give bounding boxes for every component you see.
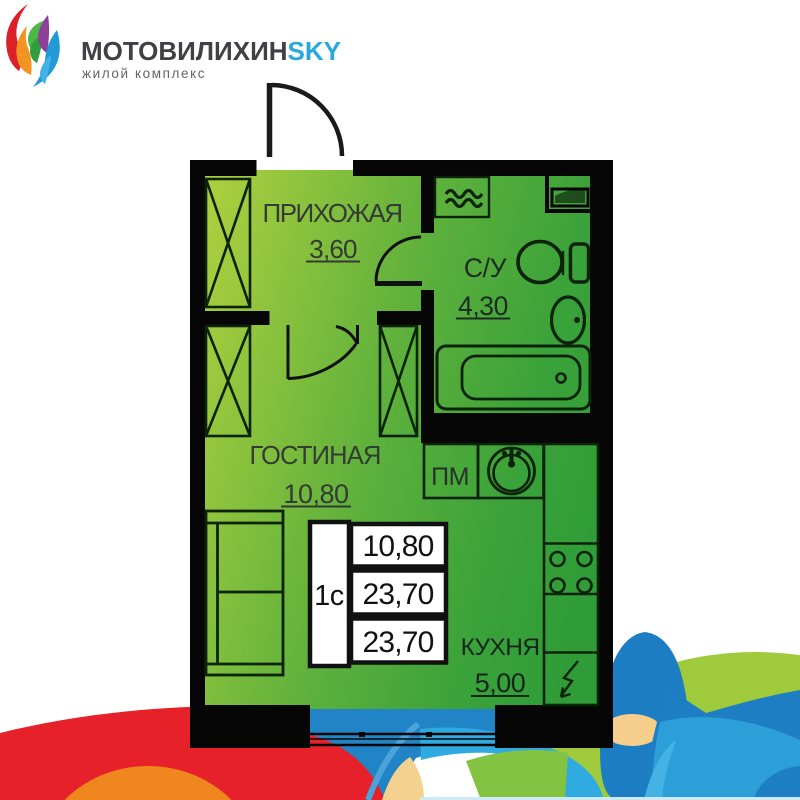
svg-text:жилой комплекс: жилой комплекс bbox=[82, 66, 206, 81]
svg-text:3,60: 3,60 bbox=[309, 234, 357, 264]
svg-text:23,70: 23,70 bbox=[362, 626, 433, 659]
svg-text:1с: 1с bbox=[314, 580, 344, 612]
svg-text:С/У: С/У bbox=[464, 253, 507, 283]
svg-text:10,80: 10,80 bbox=[283, 479, 348, 509]
svg-text:23,70: 23,70 bbox=[362, 578, 433, 611]
svg-text:5,00: 5,00 bbox=[475, 668, 526, 698]
svg-text:КУХНЯ: КУХНЯ bbox=[461, 634, 540, 661]
svg-text:10,80: 10,80 bbox=[362, 530, 433, 563]
svg-text:4,30: 4,30 bbox=[458, 291, 508, 321]
svg-text:МОТОВИЛИХИНSKY: МОТОВИЛИХИНSKY bbox=[81, 36, 341, 66]
svg-text:ПМ: ПМ bbox=[431, 463, 469, 491]
svg-text:ГОСТИНАЯ: ГОСТИНАЯ bbox=[249, 442, 380, 470]
svg-text:ПРИХОЖАЯ: ПРИХОЖАЯ bbox=[263, 198, 402, 228]
